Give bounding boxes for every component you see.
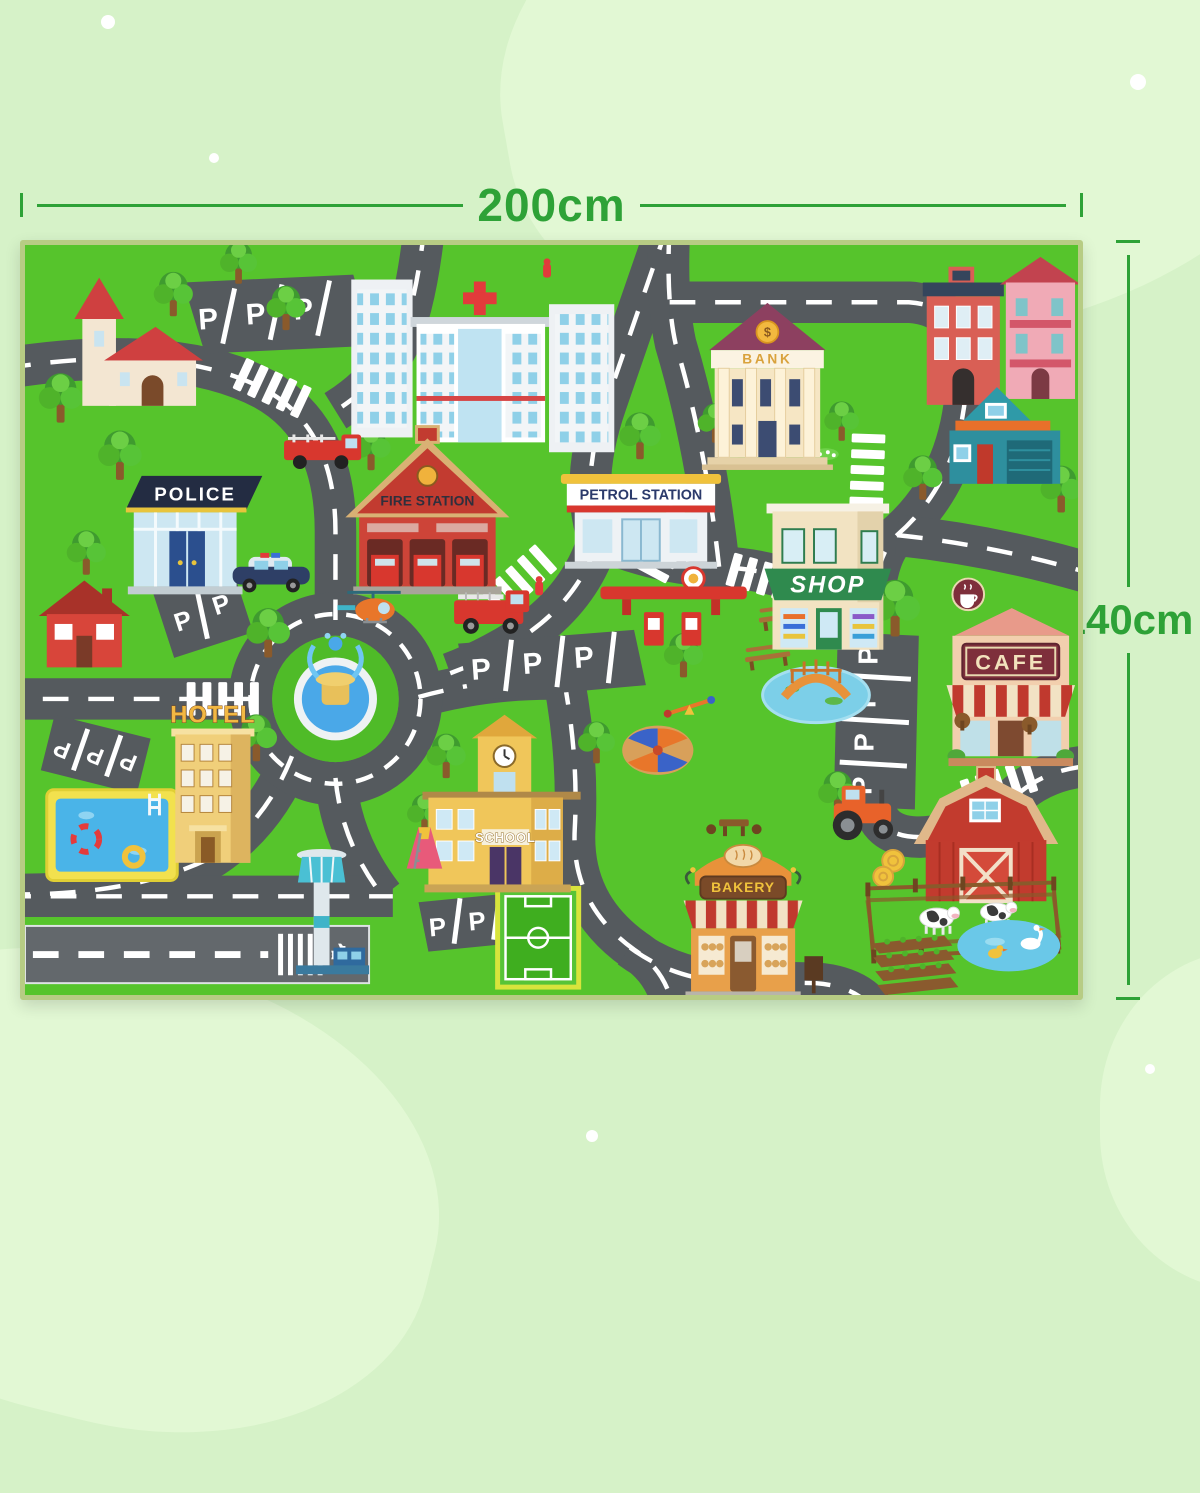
petrol-station-label: PETROL STATION <box>580 488 703 504</box>
dimension-tick <box>1116 997 1140 1000</box>
hotel-label: HOTEL <box>170 703 255 729</box>
dimension-tick <box>1080 193 1083 217</box>
fire-hydrant <box>543 258 551 277</box>
bank-coin-symbol: $ <box>764 325 771 340</box>
dimension-line <box>640 204 1066 207</box>
bakery-label: BAKERY <box>711 879 775 895</box>
decor-dot <box>586 1130 598 1142</box>
decor-dot <box>1130 74 1146 90</box>
hospital-building <box>351 280 614 453</box>
cafe-label: CAFE <box>975 649 1046 674</box>
menu-board <box>804 956 823 980</box>
background-blob <box>1100 950 1200 1290</box>
playground-carousel <box>622 726 693 775</box>
decor-dot <box>101 15 115 29</box>
swimming-pool <box>47 790 178 881</box>
fire-hydrant <box>535 576 543 595</box>
hotel-building: HOTEL <box>170 703 255 863</box>
decor-dot <box>209 153 219 163</box>
parking-letter: P <box>197 302 219 336</box>
play-mat-graphic: ✈ <box>25 245 1078 995</box>
parking-letter: P <box>522 647 544 681</box>
parking-letter: P <box>467 907 487 936</box>
parking-letter: P <box>470 653 492 687</box>
shop-label: SHOP <box>790 572 865 598</box>
shop-building: SHOP <box>765 504 892 650</box>
bank-label: BANK <box>742 352 792 367</box>
parking-letter: P <box>573 641 595 675</box>
parking-letter: P <box>245 297 267 331</box>
dimension-tick <box>20 193 23 217</box>
dimension-line <box>1127 255 1130 587</box>
dimension-line <box>1127 653 1130 985</box>
width-dimension: 200cm <box>20 182 1083 228</box>
width-dimension-label: 200cm <box>477 182 625 228</box>
duck-pond <box>957 920 1060 971</box>
height-dimension: 140cm <box>1080 240 1176 1000</box>
school-label: SCHOOL <box>475 830 536 845</box>
decor-dot <box>1145 1064 1155 1074</box>
police-label: POLICE <box>154 484 236 505</box>
dimension-tick <box>1116 240 1140 243</box>
dimension-line <box>37 204 463 207</box>
play-mat: ✈ <box>20 240 1083 1000</box>
parking-letter: P <box>428 913 448 942</box>
pink-house <box>1000 257 1078 399</box>
red-townhouse <box>923 267 1004 405</box>
parking-letter: P <box>848 733 879 751</box>
bakery-awning <box>684 901 803 929</box>
cafe-awning <box>946 685 1075 717</box>
fire-station-label: FIRE STATION <box>380 493 474 509</box>
soccer-field <box>498 888 579 987</box>
station-bell <box>418 466 438 486</box>
bread-icon <box>725 845 762 867</box>
